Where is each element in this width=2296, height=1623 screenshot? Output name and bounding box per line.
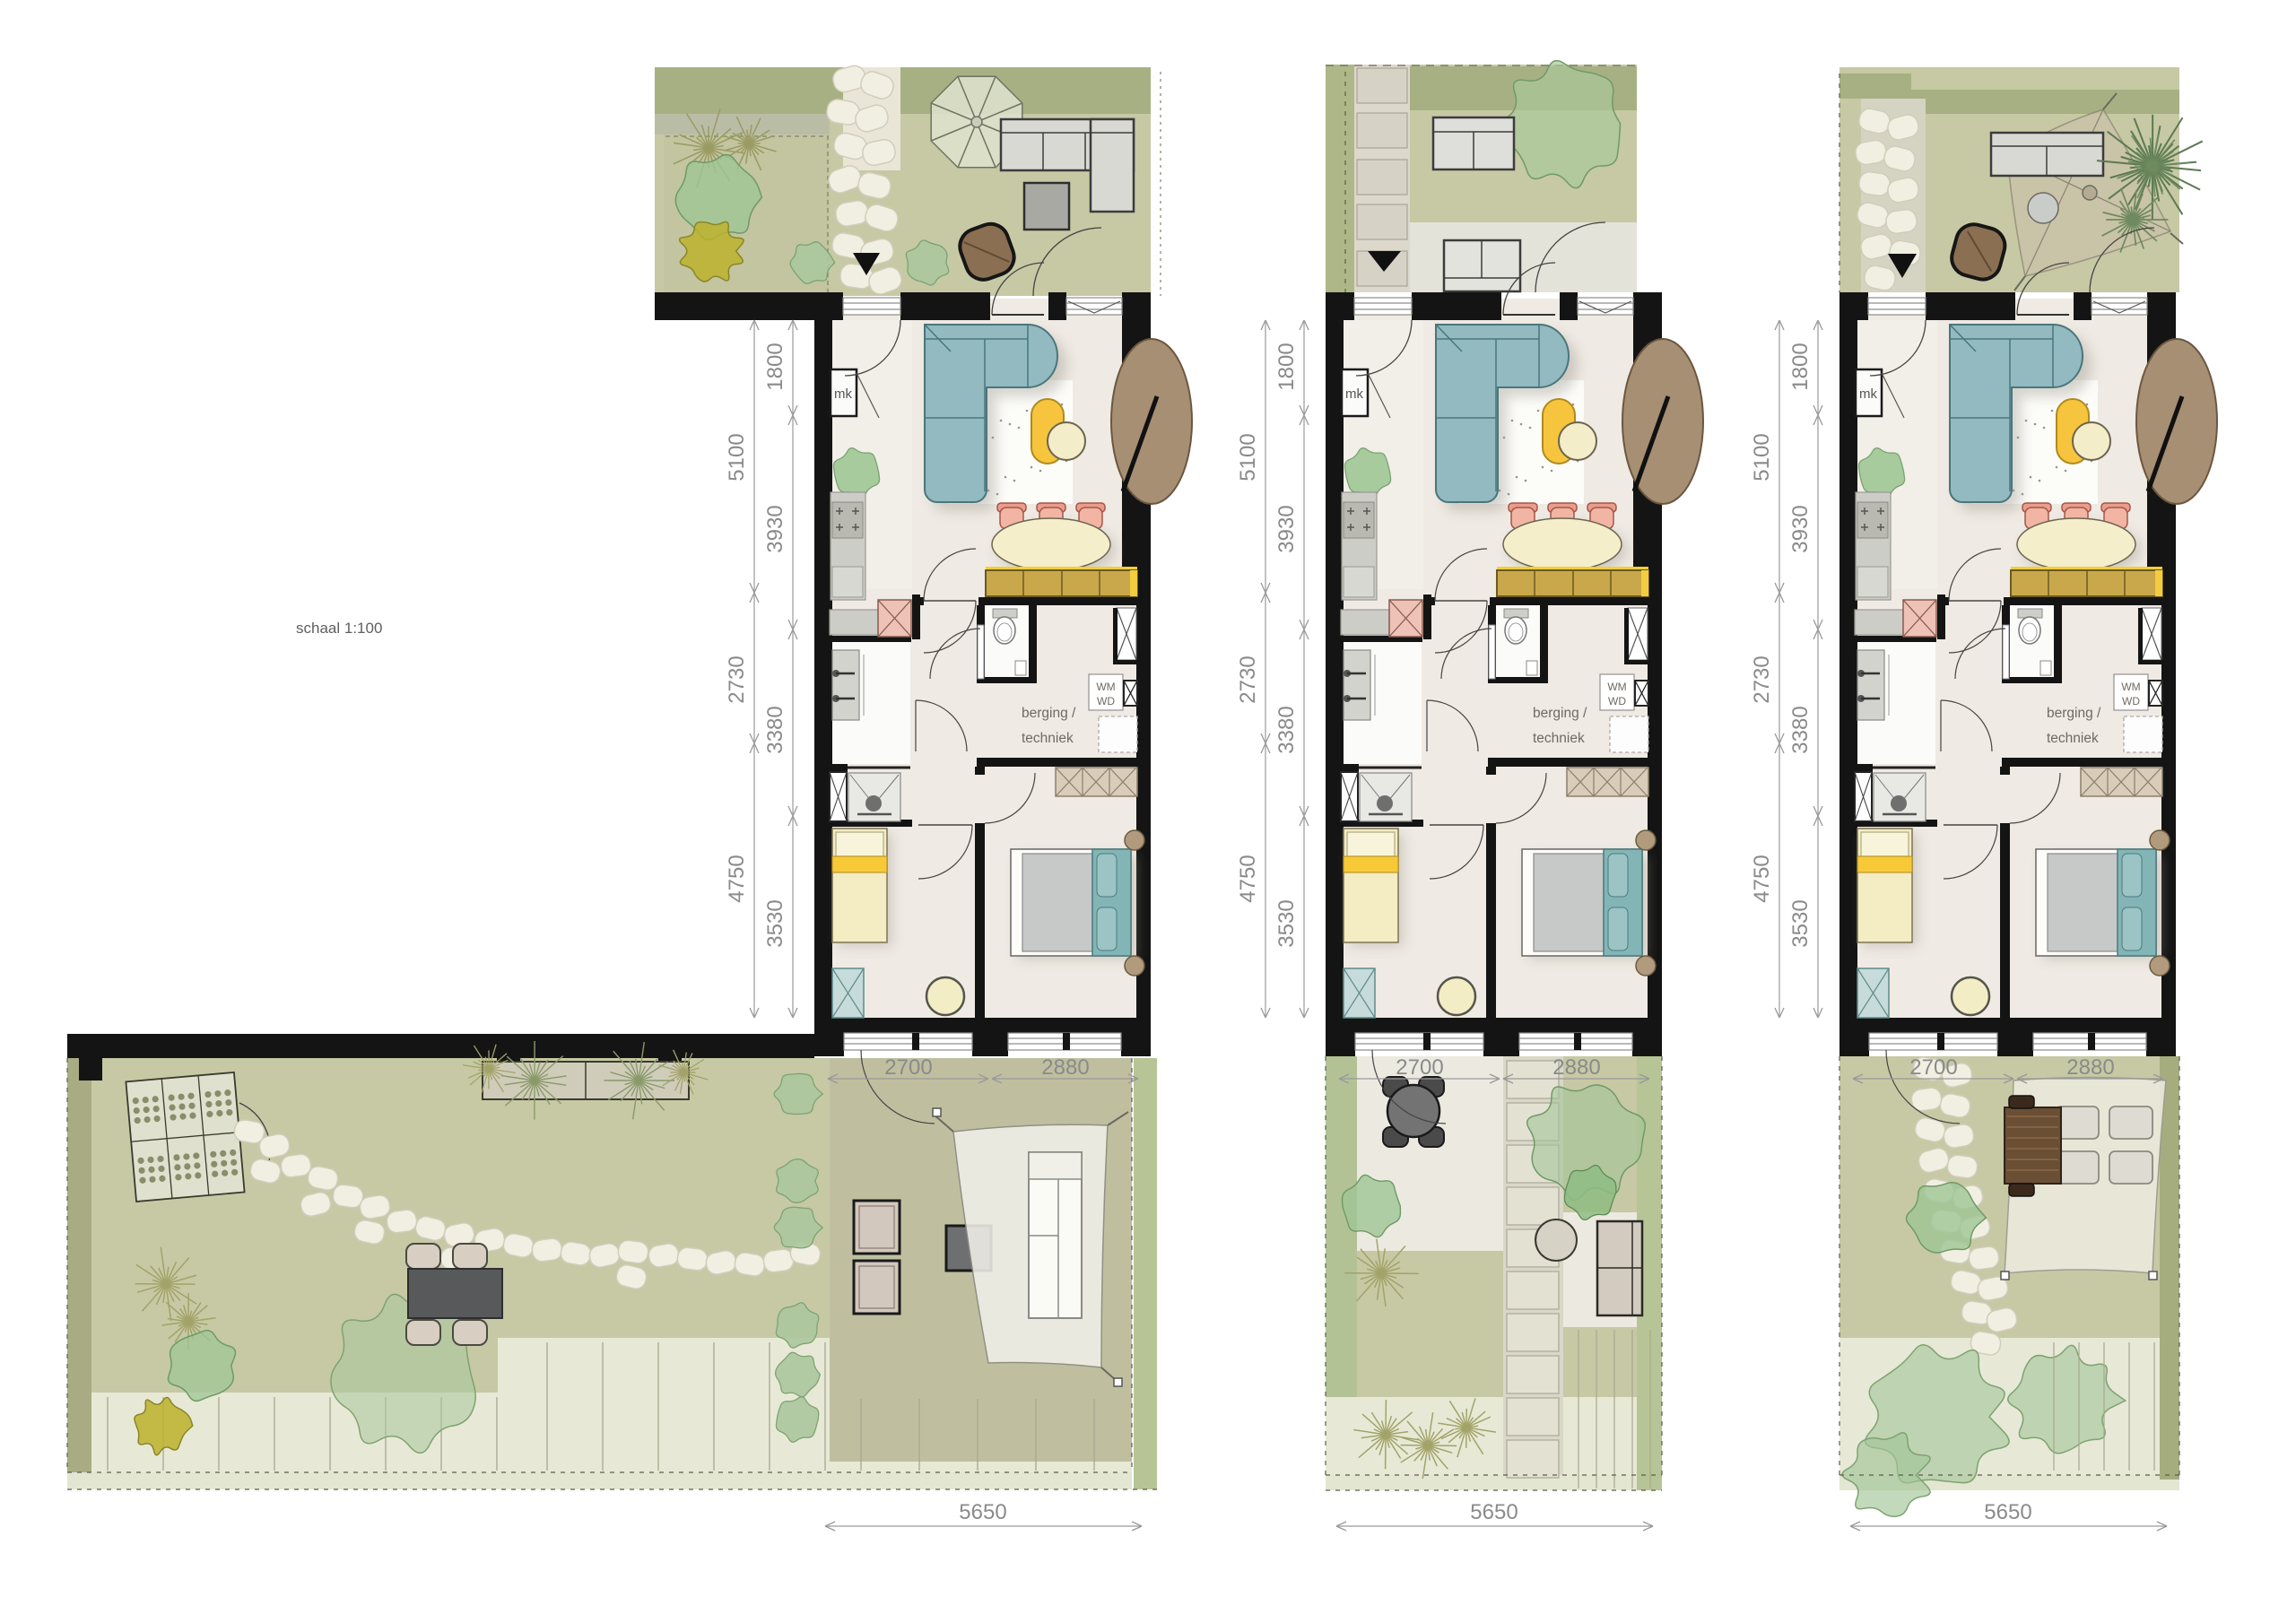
svg-text:schaal 1:100: schaal 1:100 — [296, 620, 382, 637]
